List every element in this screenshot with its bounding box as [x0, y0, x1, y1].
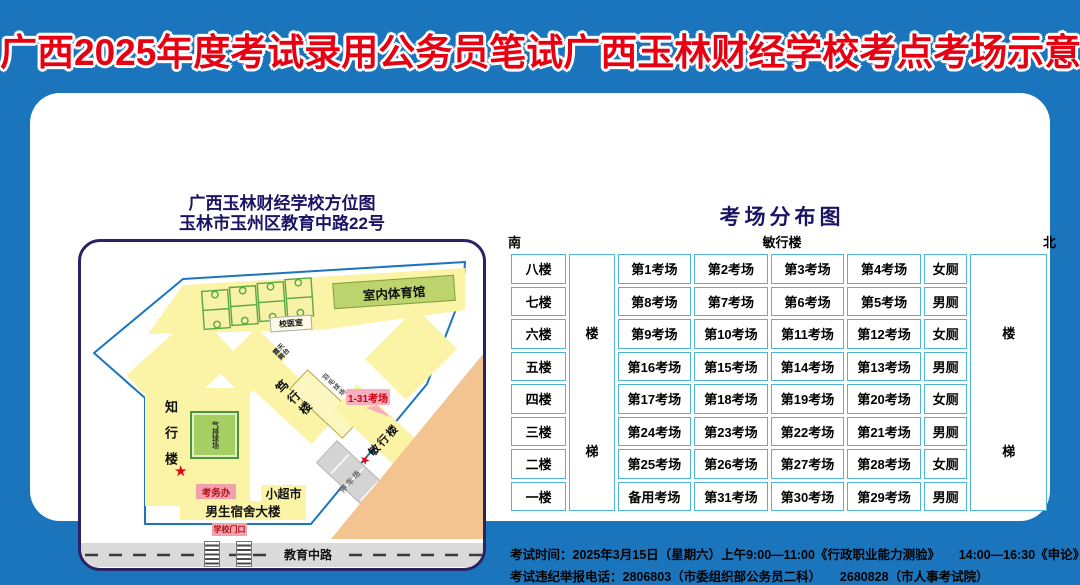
room-cell: 第3考场 — [771, 254, 845, 284]
room-cell: 第13考场 — [847, 352, 921, 382]
room-cell: 第26考场 — [694, 449, 768, 479]
floor-cell: 六楼 — [511, 319, 566, 349]
room-cell: 第1考场 — [618, 254, 692, 284]
room-cell: 第9考场 — [618, 319, 692, 349]
exam-rooms-callout: 1-31考场 — [346, 389, 390, 405]
page-title: 广西2025年度考试录用公务员笔试广西玉林财经学校考点考场示意图 — [0, 22, 1080, 76]
room-cell: 第11考场 — [771, 319, 845, 349]
room-cell: 第23考场 — [694, 417, 768, 447]
stair-char-bottom: 梯 — [1002, 441, 1015, 460]
toilet-cell: 男厕 — [924, 287, 968, 317]
map-title-line2: 玉林市玉州区教育中路22号 — [78, 214, 486, 234]
distribution-title: 考场分布图 — [508, 201, 1056, 231]
room-distribution-table: 八楼 楼 梯 第1考场 第2考场 第3考场 第4考场 女厕 楼 梯 — [508, 251, 1050, 514]
room-cell: 第2考场 — [694, 254, 768, 284]
road-label: 教育中路 — [277, 545, 339, 563]
zhixing-star-icon: ★ — [174, 464, 187, 479]
room-cell: 第15考场 — [694, 352, 768, 382]
room-cell: 第29考场 — [847, 482, 921, 512]
map-title: 广西玉林财经学校方位图 玉林市玉州区教育中路22号 — [78, 194, 486, 234]
stair-char-top: 楼 — [585, 323, 598, 342]
floor-cell: 五楼 — [511, 352, 566, 382]
room-cell: 第21考场 — [847, 417, 921, 447]
floor-cell: 二楼 — [511, 449, 566, 479]
zebra-crossing — [236, 541, 252, 567]
table-row: 八楼 楼 梯 第1考场 第2考场 第3考场 第4考场 女厕 楼 梯 — [511, 254, 1047, 284]
room-cell: 备用考场 — [618, 482, 692, 512]
stair-char-top: 楼 — [1002, 323, 1015, 342]
room-cell: 第28考场 — [847, 449, 921, 479]
toilet-cell: 男厕 — [924, 417, 968, 447]
room-cell: 第4考场 — [847, 254, 921, 284]
room-cell: 第27考场 — [771, 449, 845, 479]
room-cell: 第25考场 — [618, 449, 692, 479]
direction-south: 南 — [508, 232, 521, 251]
room-cell: 第18考场 — [694, 384, 768, 414]
direction-north: 北 — [1043, 232, 1056, 251]
dormitory-label: 男生宿舍大楼 — [180, 501, 306, 520]
building-name-header: 敏行楼 — [762, 232, 801, 251]
exam-office-label: 考务办 — [196, 484, 236, 499]
zebra-crossing — [204, 541, 220, 567]
stair-char-bottom: 梯 — [585, 441, 598, 460]
room-cell: 第20考场 — [847, 384, 921, 414]
room-cell: 第17考场 — [618, 384, 692, 414]
floor-cell: 一楼 — [511, 482, 566, 512]
volleyball-label: 气排球场 — [210, 421, 220, 449]
map-title-line1: 广西玉林财经学校方位图 — [78, 194, 486, 214]
room-cell: 第5考场 — [847, 287, 921, 317]
toilet-cell: 男厕 — [924, 352, 968, 382]
room-cell: 第31考场 — [694, 482, 768, 512]
room-cell: 第22考场 — [771, 417, 845, 447]
room-cell: 第6考场 — [771, 287, 845, 317]
floor-cell: 八楼 — [511, 254, 566, 284]
room-cell: 第7考场 — [694, 287, 768, 317]
volleyball-court: 气排球场 — [190, 411, 239, 459]
room-cell: 第16考场 — [618, 352, 692, 382]
stairs-left-cell: 楼 梯 — [569, 254, 614, 511]
toilet-cell: 女厕 — [924, 254, 968, 284]
room-cell: 第14考场 — [771, 352, 845, 382]
exam-time-note: 考试时间：2025年3月15日（星期六）上午9:00—11:00《行政职业能力测… — [510, 544, 1070, 563]
floor-cell: 七楼 — [511, 287, 566, 317]
clinic-label: 校医室 — [270, 315, 313, 333]
toilet-cell: 女厕 — [924, 449, 968, 479]
direction-row: 南 敏行楼 北 — [508, 232, 1056, 251]
toilet-cell: 男厕 — [924, 482, 968, 512]
supermarket-label: 小超市 — [261, 485, 306, 502]
room-cell: 第30考场 — [771, 482, 845, 512]
floor-cell: 三楼 — [511, 417, 566, 447]
room-cell: 第8考场 — [618, 287, 692, 317]
content-panel: 广西玉林财经学校方位图 玉林市玉州区教育中路22号 — [30, 93, 1050, 521]
toilet-cell: 女厕 — [924, 319, 968, 349]
room-cell: 第24考场 — [618, 417, 692, 447]
room-cell: 第19考场 — [771, 384, 845, 414]
report-phone-note: 考试违纪举报电话：2806803（市委组织部公务员二科） 2680828（市人事… — [510, 566, 1070, 585]
school-gate-label: 学校门口 — [212, 523, 247, 536]
campus-map: 室内体育馆 校医室 笃行楼 露天舞台 羽毛球场 1-31考场 ★ 敏行楼 停车场… — [78, 239, 486, 571]
stairs-right-cell: 楼 梯 — [970, 254, 1047, 511]
toilet-cell: 女厕 — [924, 384, 968, 414]
floor-cell: 四楼 — [511, 384, 566, 414]
room-cell: 第12考场 — [847, 319, 921, 349]
room-cell: 第10考场 — [694, 319, 768, 349]
